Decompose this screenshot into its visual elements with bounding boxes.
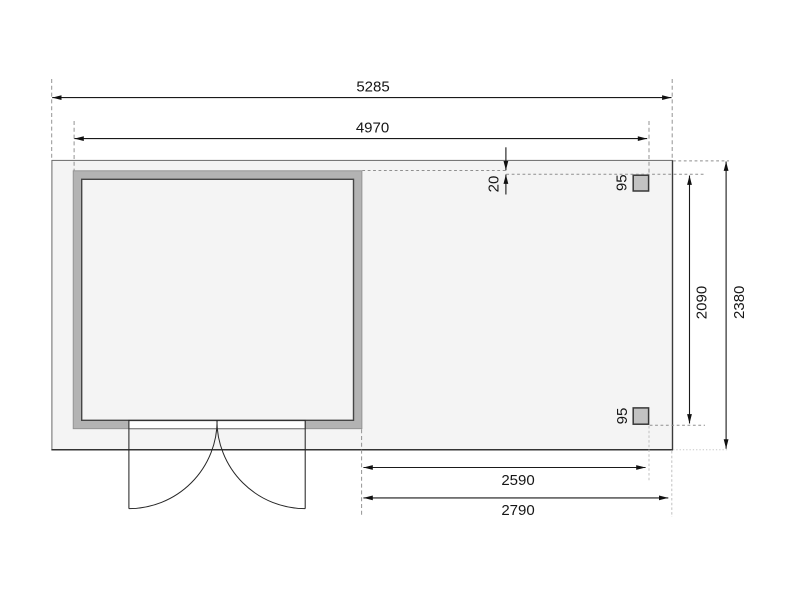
svg-text:5285: 5285 <box>356 79 389 96</box>
svg-text:2090: 2090 <box>694 286 711 319</box>
svg-text:95: 95 <box>614 174 631 191</box>
svg-text:4970: 4970 <box>356 120 389 137</box>
svg-text:2790: 2790 <box>501 502 534 519</box>
svg-text:95: 95 <box>614 408 631 425</box>
svg-text:20: 20 <box>486 176 503 193</box>
svg-text:2380: 2380 <box>731 286 748 319</box>
svg-text:2590: 2590 <box>501 472 534 489</box>
